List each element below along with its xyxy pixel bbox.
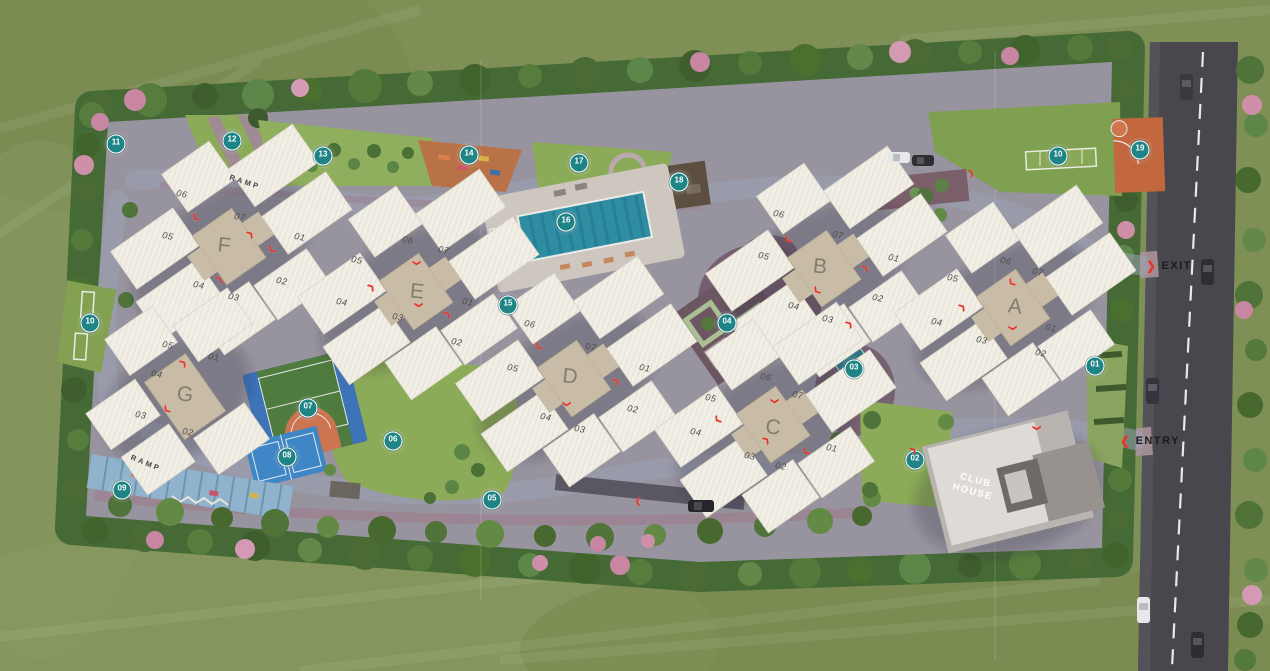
car	[1180, 74, 1193, 100]
half-court	[1111, 117, 1166, 193]
car	[1146, 378, 1159, 404]
car	[1137, 597, 1150, 623]
plan-artwork	[0, 0, 1270, 671]
car	[888, 152, 910, 163]
car	[912, 155, 934, 166]
site-master-plan: 0102030405060708091010111213141516171819…	[0, 0, 1270, 671]
car	[688, 500, 714, 512]
car	[1201, 259, 1214, 285]
service-structure	[329, 481, 360, 500]
car	[1191, 632, 1204, 658]
